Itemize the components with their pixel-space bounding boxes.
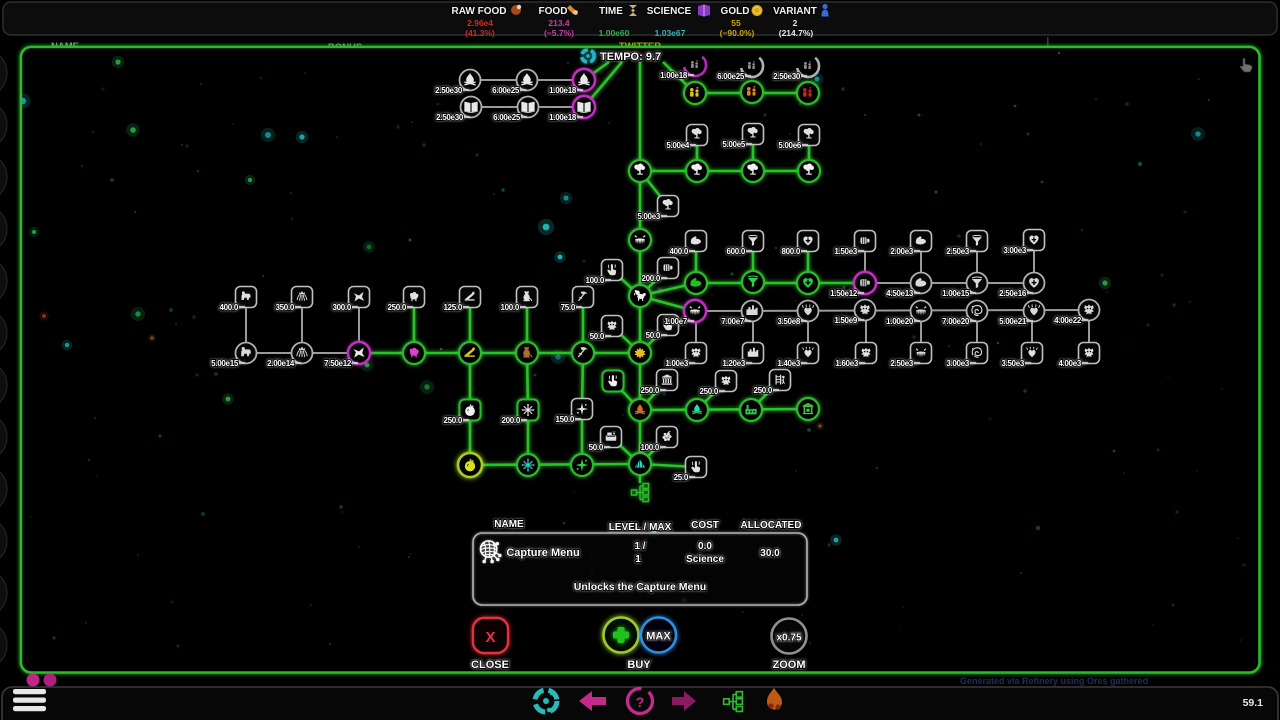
svg-text:1.60e3: 1.60e3: [835, 359, 859, 368]
svg-text:2.50e3: 2.50e3: [946, 247, 970, 256]
svg-text:2: 2: [793, 18, 798, 28]
svg-text:(214.7%): (214.7%): [779, 28, 814, 38]
svg-text:?: ?: [636, 694, 645, 710]
svg-text:1.50e9: 1.50e9: [834, 316, 858, 325]
svg-text:50.0: 50.0: [646, 331, 661, 340]
svg-text:5.00e6: 5.00e6: [778, 141, 802, 150]
svg-text:150.0: 150.0: [555, 415, 574, 424]
svg-text:(41.3%): (41.3%): [465, 28, 495, 38]
svg-text:TIME: TIME: [599, 6, 623, 17]
svg-text:600.0: 600.0: [726, 247, 745, 256]
svg-text:3.00e3: 3.00e3: [1003, 246, 1027, 255]
svg-text:1.00e15: 1.00e15: [942, 289, 970, 298]
svg-text:59.1: 59.1: [1243, 697, 1264, 709]
svg-text:1.00e3: 1.00e3: [665, 359, 689, 368]
svg-text:GOLD: GOLD: [721, 6, 750, 17]
svg-text:6.00e25: 6.00e25: [492, 86, 520, 95]
svg-text:1.00e18: 1.00e18: [549, 86, 577, 95]
svg-text:7.00e20: 7.00e20: [942, 317, 970, 326]
svg-text:3.50e8: 3.50e8: [777, 317, 801, 326]
svg-text:X: X: [485, 629, 495, 646]
svg-text:1.03e67: 1.03e67: [655, 28, 686, 38]
svg-text:1.50e12: 1.50e12: [830, 289, 858, 298]
svg-text:100.0: 100.0: [640, 443, 659, 452]
svg-text:250.0: 250.0: [443, 416, 462, 425]
svg-text:1.00e7: 1.00e7: [664, 317, 688, 326]
svg-text:100.0: 100.0: [585, 276, 604, 285]
svg-text:SCIENCE: SCIENCE: [647, 6, 692, 17]
svg-text:200.0: 200.0: [641, 274, 660, 283]
svg-text:RAW FOOD: RAW FOOD: [452, 6, 507, 17]
svg-text:5.00e4: 5.00e4: [666, 141, 690, 150]
svg-text:Capture Menu: Capture Menu: [506, 547, 579, 559]
svg-text:ZOOM: ZOOM: [773, 659, 806, 671]
svg-text:ALLOCATED: ALLOCATED: [741, 520, 802, 531]
svg-text:250.0: 250.0: [387, 303, 406, 312]
svg-text:x0.75: x0.75: [776, 633, 801, 644]
svg-text:250.0: 250.0: [640, 386, 659, 395]
svg-text:5.00e15: 5.00e15: [211, 359, 239, 368]
svg-text:1.00e60: 1.00e60: [599, 28, 630, 38]
svg-text:6.00e25: 6.00e25: [493, 113, 521, 122]
svg-text:1 /: 1 /: [634, 541, 645, 552]
svg-text:1.50e3: 1.50e3: [834, 247, 858, 256]
svg-text:50.0: 50.0: [589, 443, 604, 452]
svg-text:250.0: 250.0: [699, 387, 718, 396]
svg-text:2.50e3: 2.50e3: [890, 359, 914, 368]
svg-text:1.40e3: 1.40e3: [777, 359, 801, 368]
svg-text:4.00e22: 4.00e22: [1054, 316, 1082, 325]
svg-text:3.50e3: 3.50e3: [1001, 359, 1025, 368]
svg-text:TEMPO: 9.7: TEMPO: 9.7: [600, 51, 661, 63]
svg-text:6.00e25: 6.00e25: [717, 72, 745, 81]
svg-text:0.0: 0.0: [698, 541, 712, 552]
svg-text:1.00e18: 1.00e18: [549, 113, 577, 122]
svg-text:75.0: 75.0: [561, 303, 576, 312]
svg-text:300.0: 300.0: [332, 303, 351, 312]
svg-text:FOOD: FOOD: [539, 6, 568, 17]
svg-text:2.00e3: 2.00e3: [890, 247, 914, 256]
svg-text:2.00e14: 2.00e14: [267, 359, 295, 368]
svg-text:5.00e5: 5.00e5: [722, 140, 746, 149]
svg-text:55: 55: [731, 18, 741, 28]
svg-text:1: 1: [635, 554, 641, 565]
svg-text:VARIANT: VARIANT: [773, 6, 817, 17]
svg-text:400.0: 400.0: [669, 247, 688, 256]
svg-text:800.0: 800.0: [781, 247, 800, 256]
svg-text:1.20e3: 1.20e3: [722, 359, 746, 368]
svg-text:Science: Science: [686, 554, 724, 565]
svg-text:25.0: 25.0: [674, 473, 689, 482]
svg-text:LEVEL / MAX: LEVEL / MAX: [609, 522, 672, 533]
svg-text:(−5.7%): (−5.7%): [544, 28, 574, 38]
svg-text:2.50e30: 2.50e30: [435, 86, 463, 95]
svg-text:(−90.0%): (−90.0%): [720, 28, 755, 38]
svg-text:2.50e30: 2.50e30: [773, 72, 801, 81]
svg-text:350.0: 350.0: [275, 303, 294, 312]
svg-text:5.00e3: 5.00e3: [637, 212, 661, 221]
svg-text:NAME: NAME: [494, 519, 524, 530]
svg-text:400.0: 400.0: [219, 303, 238, 312]
svg-text:1.00e18: 1.00e18: [660, 71, 688, 80]
svg-text:213.4: 213.4: [548, 18, 570, 28]
svg-text:100.0: 100.0: [500, 303, 519, 312]
svg-text:250.0: 250.0: [753, 386, 772, 395]
svg-text:BUY: BUY: [627, 659, 651, 671]
svg-text:COST: COST: [691, 520, 719, 531]
svg-text:2.50e16: 2.50e16: [999, 289, 1027, 298]
svg-text:3.00e3: 3.00e3: [946, 359, 970, 368]
svg-text:125.0: 125.0: [443, 303, 462, 312]
svg-text:200.0: 200.0: [501, 416, 520, 425]
svg-text:Generated via Refinery using O: Generated via Refinery using Ores gather…: [960, 676, 1148, 686]
svg-text:1.00e20: 1.00e20: [886, 317, 914, 326]
svg-text:7.00e7: 7.00e7: [721, 317, 745, 326]
svg-text:7.50e12: 7.50e12: [324, 359, 352, 368]
svg-text:30.0: 30.0: [760, 548, 780, 559]
svg-text:5.00e21: 5.00e21: [999, 317, 1027, 326]
svg-text:MAX: MAX: [646, 631, 671, 643]
svg-text:50.0: 50.0: [590, 332, 605, 341]
svg-text:Unlocks the Capture Menu: Unlocks the Capture Menu: [574, 581, 706, 593]
svg-text:4.00e3: 4.00e3: [1058, 359, 1082, 368]
svg-text:4.50e13: 4.50e13: [886, 289, 914, 298]
svg-text:2.96e4: 2.96e4: [467, 18, 493, 28]
svg-text:CLOSE: CLOSE: [471, 659, 509, 671]
svg-text:2.50e30: 2.50e30: [436, 113, 464, 122]
